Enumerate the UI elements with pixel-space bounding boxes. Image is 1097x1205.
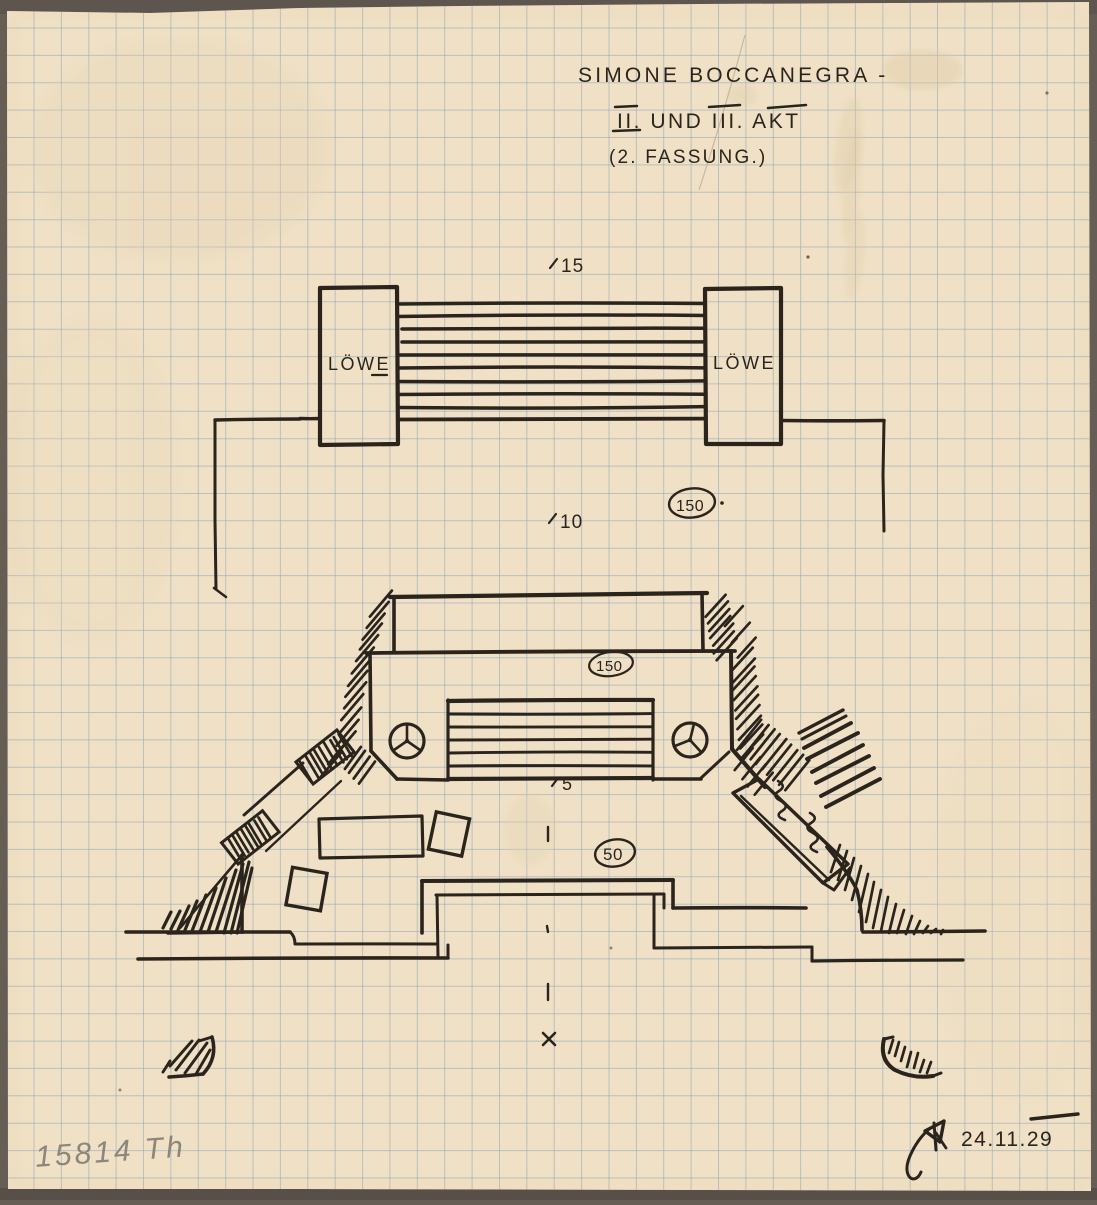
- svg-text:(2. FASSUNG.): (2. FASSUNG.): [609, 147, 767, 168]
- svg-text:5: 5: [562, 774, 572, 794]
- svg-text:LÖWE: LÖWE: [328, 354, 391, 374]
- svg-text:150: 150: [596, 658, 623, 675]
- svg-text:15: 15: [561, 256, 584, 277]
- svg-text:10: 10: [560, 512, 583, 533]
- svg-text:II. UND III. AKT: II. UND III. AKT: [617, 110, 801, 133]
- svg-text:24.11.29: 24.11.29: [961, 1128, 1053, 1151]
- svg-text:150: 150: [676, 498, 704, 515]
- svg-text:LÖWE: LÖWE: [713, 353, 776, 373]
- svg-text:50: 50: [603, 845, 623, 864]
- svg-text:SIMONE BOCCANEGRA -: SIMONE BOCCANEGRA -: [578, 64, 889, 87]
